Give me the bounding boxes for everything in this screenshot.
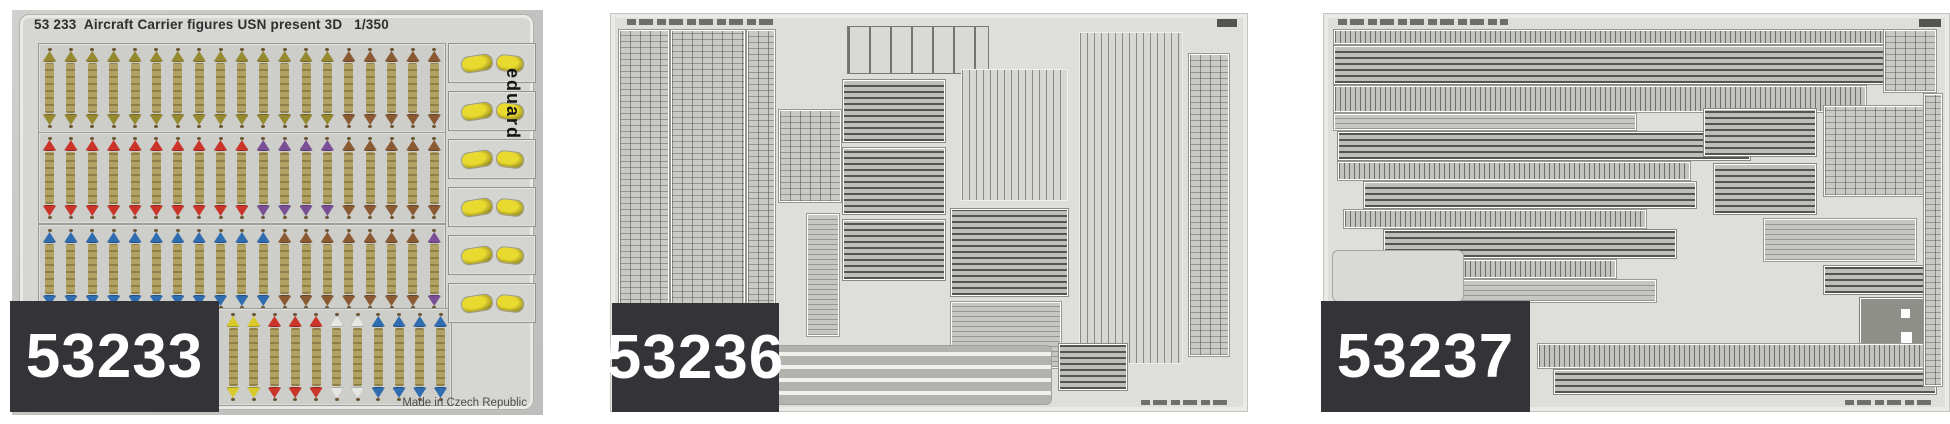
- product-code-badge: 53237: [1321, 301, 1530, 412]
- pe-part: [1059, 344, 1127, 390]
- painted-figure-pair: [64, 48, 77, 128]
- yellow-figure: [496, 198, 524, 216]
- pe-part: [1334, 114, 1636, 130]
- yellow-figure: [461, 245, 493, 265]
- painted-figure-pair: [214, 229, 227, 309]
- yellow-figures-box: [448, 235, 536, 275]
- painted-figure-pair: [289, 313, 302, 401]
- painted-figure-pair: [43, 48, 56, 128]
- painted-figure-pair: [364, 229, 377, 309]
- painted-figure-pair: [278, 48, 291, 128]
- pe-part: [1704, 109, 1816, 156]
- painted-figure-pair: [406, 137, 419, 219]
- painted-figure-pair: [129, 137, 142, 219]
- painted-figure-pair: [43, 137, 56, 219]
- painted-figure-pair: [300, 48, 313, 128]
- yellow-figure: [461, 197, 493, 217]
- product-code-badge: 53233: [10, 301, 219, 412]
- painted-figure-pair: [171, 137, 184, 219]
- pe-part: [619, 30, 669, 337]
- painted-figure-pair: [257, 48, 270, 128]
- painted-figure-pair: [214, 48, 227, 128]
- painted-figure-pair: [150, 137, 163, 219]
- yellow-figure: [461, 53, 493, 73]
- painted-figure-pair: [86, 137, 99, 219]
- painted-figure-pair: [321, 137, 334, 219]
- pe-part: [951, 209, 1068, 296]
- product-code: 53236: [607, 322, 784, 393]
- painted-figure-pair: [406, 229, 419, 309]
- yellow-figure: [496, 294, 524, 312]
- pe-part: [1334, 30, 1926, 44]
- painted-figure-pair: [278, 137, 291, 219]
- painted-figure-pair: [385, 229, 398, 309]
- pe-part: [1338, 132, 1750, 160]
- painted-figure-pair: [86, 48, 99, 128]
- yellow-figure: [496, 246, 524, 264]
- painted-figure-pair: [43, 229, 56, 309]
- pe-part: [843, 148, 945, 214]
- pe-part: [1364, 182, 1696, 208]
- pe-part: [1344, 210, 1646, 228]
- painted-figure-pair: [342, 229, 355, 309]
- painted-figure-pair: [107, 229, 120, 309]
- painted-figure-pair: [129, 229, 142, 309]
- sheet-footer-text: [1141, 400, 1231, 405]
- painted-figure-pair: [150, 229, 163, 309]
- pe-part: [1079, 32, 1183, 364]
- pe-part: [1334, 46, 1891, 84]
- painted-figure-pair: [257, 137, 270, 219]
- painted-figure-pair: [235, 229, 248, 309]
- pe-part: [1189, 54, 1229, 356]
- product-code: 53237: [1337, 321, 1514, 392]
- painted-figure-pair: [372, 313, 385, 401]
- painted-figure-pair: [86, 229, 99, 309]
- painted-figure-pair: [64, 229, 77, 309]
- painted-figure-pair: [342, 137, 355, 219]
- painted-figure-pair: [214, 137, 227, 219]
- pe-part: [1824, 266, 1926, 294]
- figure-row-bottom: [180, 308, 452, 406]
- painted-figure-pair: [129, 48, 142, 128]
- eduard-logo: eduard: [502, 68, 523, 140]
- sheet-header-text: [627, 19, 777, 25]
- painted-figure-pair: [193, 48, 206, 128]
- pe-part: [1332, 250, 1464, 302]
- yellow-figure: [461, 101, 493, 121]
- pe-part: [843, 80, 945, 142]
- painted-figure-pair: [321, 48, 334, 128]
- painted-figure-pair: [193, 229, 206, 309]
- product-card-53237[interactable]: 53237: [1323, 13, 1950, 412]
- painted-figure-pair: [268, 313, 281, 401]
- made-in-text: Made in Czech Republic: [402, 397, 527, 409]
- painted-figure-pair: [351, 313, 364, 401]
- sheet-footer-text: [1845, 400, 1935, 405]
- painted-figure-pair: [428, 137, 441, 219]
- sheet-title: 53 233 Aircraft Carrier figures USN pres…: [34, 17, 389, 32]
- pe-part: [779, 110, 841, 202]
- painted-figure-pair: [107, 48, 120, 128]
- painted-figure-pair: [406, 48, 419, 128]
- sheet-header-text: [1338, 19, 1508, 25]
- yellow-figure: [461, 149, 493, 169]
- pe-part: [847, 26, 989, 74]
- yellow-figures-box: [448, 283, 536, 323]
- painted-figure-pair: [364, 48, 377, 128]
- product-code: 53233: [26, 321, 203, 392]
- painted-figure-pair: [310, 313, 323, 401]
- painted-figure-pair: [150, 48, 163, 128]
- pe-part: [1338, 162, 1690, 180]
- figure-row-olive: [38, 43, 446, 133]
- pe-part: [807, 214, 839, 336]
- painted-figure-pair: [393, 313, 406, 401]
- painted-figure-pair: [247, 313, 260, 401]
- painted-figure-pair: [428, 229, 441, 309]
- pe-part: [1554, 370, 1936, 394]
- pe-part: [1924, 94, 1942, 386]
- painted-figure-pair: [278, 229, 291, 309]
- painted-figure-pair: [64, 137, 77, 219]
- pe-part: [1884, 30, 1936, 92]
- pe-part: [1824, 106, 1938, 196]
- painted-figure-pair: [428, 48, 441, 128]
- painted-figure-pair: [342, 48, 355, 128]
- painted-figure-pair: [257, 229, 270, 309]
- painted-figure-pair: [227, 313, 240, 401]
- painted-figure-pair: [107, 137, 120, 219]
- painted-figure-pair: [300, 229, 313, 309]
- pe-part: [671, 30, 745, 317]
- yellow-figure: [496, 150, 524, 168]
- painted-figure-pair: [434, 313, 447, 401]
- painted-figure-pair: [193, 137, 206, 219]
- painted-figure-pair: [171, 48, 184, 128]
- pe-part: [1764, 219, 1916, 261]
- painted-figure-pair: [413, 313, 426, 401]
- pe-part: [843, 220, 945, 280]
- corner-mark: [1217, 19, 1237, 27]
- pe-part: [1538, 344, 1936, 368]
- corner-mark: [1919, 19, 1941, 27]
- painted-figure-pair: [171, 229, 184, 309]
- yellow-figure: [461, 293, 493, 313]
- painted-figure-pair: [330, 313, 343, 401]
- painted-figure-pair: [235, 48, 248, 128]
- painted-figure-pair: [300, 137, 313, 219]
- painted-figure-pair: [321, 229, 334, 309]
- yellow-figures-box: [448, 139, 536, 179]
- pe-part: [961, 69, 1068, 201]
- pe-part: [1714, 164, 1816, 214]
- product-card-53233[interactable]: 53 233 Aircraft Carrier figures USN pres…: [12, 10, 543, 415]
- painted-figure-pair: [235, 137, 248, 219]
- painted-figure-pair: [364, 137, 377, 219]
- painted-figure-pair: [385, 137, 398, 219]
- yellow-figures-box: [448, 187, 536, 227]
- painted-figure-pair: [385, 48, 398, 128]
- figure-row-red: [38, 132, 446, 224]
- product-code-badge: 53236: [612, 303, 779, 412]
- product-thumbnails-strip: 53 233 Aircraft Carrier figures USN pres…: [0, 0, 1950, 424]
- product-card-53236[interactable]: 53236: [610, 13, 1248, 412]
